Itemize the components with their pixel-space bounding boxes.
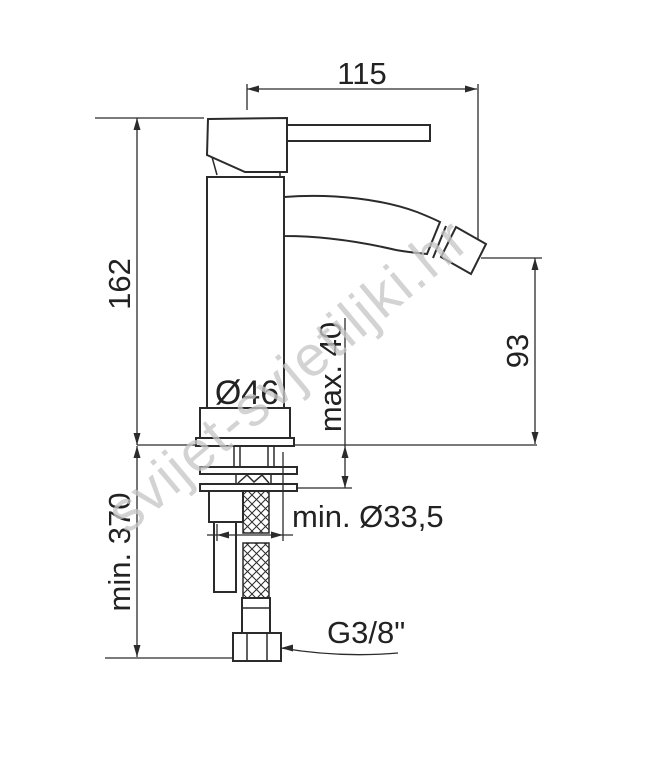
arrowhead-left: [247, 86, 259, 93]
dimension-label-162: 162: [102, 258, 137, 310]
arrowhead-right: [271, 532, 283, 539]
arrowhead-up: [342, 446, 349, 458]
hose-hex-nut: [233, 633, 281, 661]
arrowhead-down: [134, 645, 141, 657]
gasket-profile: [238, 475, 269, 483]
dimension-label-115: 115: [337, 56, 386, 91]
watermark-text: svijet-svjetiljki.hr: [94, 206, 481, 545]
arrowhead-leader: [281, 645, 293, 652]
arrowhead-down: [342, 476, 349, 488]
arrowhead-up: [134, 446, 141, 458]
technical-drawing-page: 115 162 min. 370 93 max. 40: [0, 0, 652, 762]
hose-end-fitting: [242, 598, 270, 633]
dimension-label-93: 93: [500, 334, 535, 368]
label-connection-thread: G3/8": [281, 615, 405, 655]
dimension-label-min-diameter: min. Ø33,5: [292, 499, 444, 534]
clamp-nut: [209, 491, 243, 522]
thread-label: G3/8": [327, 615, 405, 650]
flex-hose-braid-lower: [243, 543, 269, 598]
dimension-body-height: 162: [95, 118, 204, 445]
cartridge-head: [207, 118, 287, 172]
lever-handle: [287, 125, 430, 141]
arrowhead-up: [532, 258, 539, 270]
flex-hose-braid-upper: [243, 491, 269, 533]
arrowhead-down: [134, 433, 141, 445]
dimension-outlet-height: 93: [481, 258, 542, 444]
arrowhead-up: [134, 118, 141, 130]
arrowhead-down: [532, 432, 539, 444]
faucet-dimension-diagram: 115 162 min. 370 93 max. 40: [0, 0, 652, 762]
arrowhead-right: [465, 86, 477, 93]
